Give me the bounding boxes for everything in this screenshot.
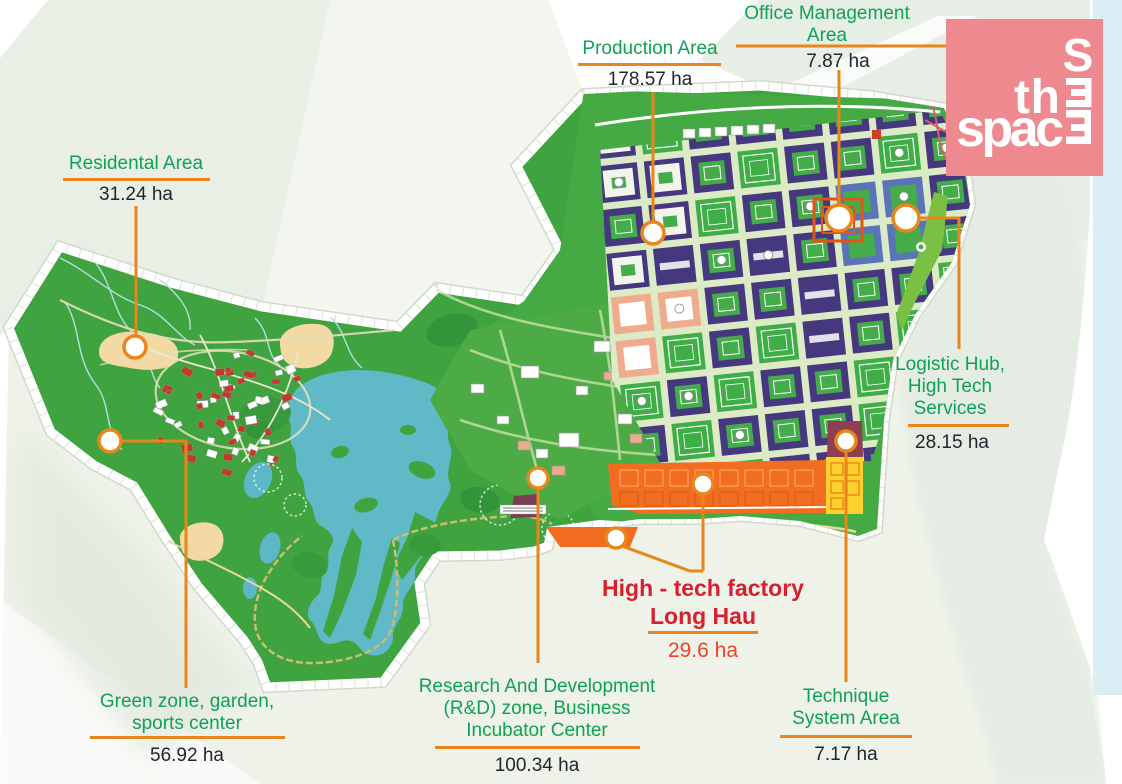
- svg-text:S: S: [1063, 29, 1094, 81]
- svg-text:spac: spac: [956, 100, 1064, 158]
